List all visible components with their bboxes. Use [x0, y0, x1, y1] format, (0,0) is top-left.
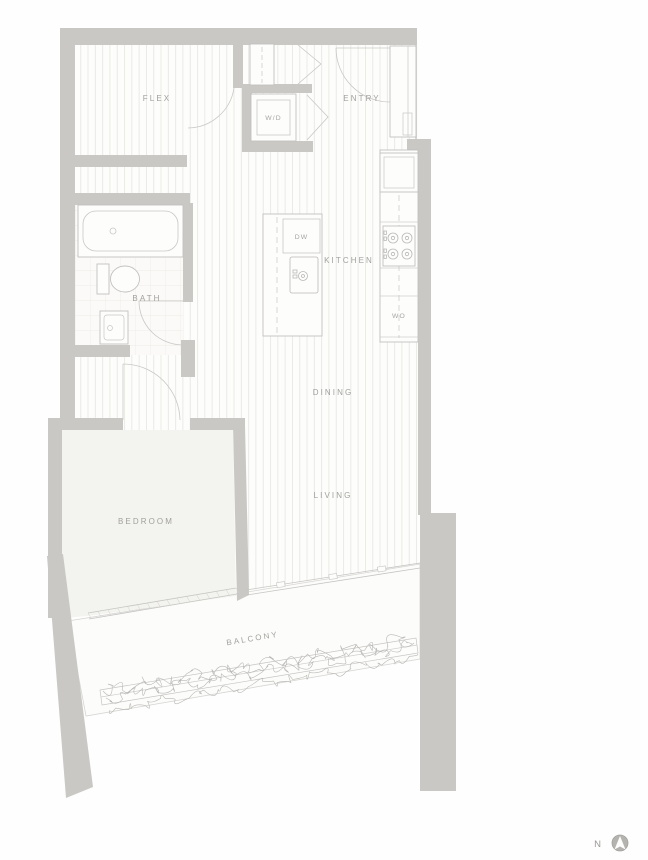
- range-stove: [383, 226, 415, 266]
- kitchen-island: [263, 214, 322, 336]
- toilet: [97, 264, 140, 294]
- wall-oven-label: WO: [392, 313, 406, 320]
- bedroom-label: BEDROOM: [118, 517, 174, 526]
- entry-side-closet: [390, 46, 416, 137]
- north-label: N: [594, 839, 602, 850]
- vanity-sink: [100, 311, 128, 344]
- right-pier: [420, 513, 456, 791]
- bathtub: [78, 205, 183, 257]
- refrigerator: [380, 153, 418, 192]
- floor-plan-page: VANS: [0, 0, 648, 860]
- island-sink: [290, 257, 318, 293]
- dishwasher-label: DW: [295, 234, 309, 241]
- dining-label: DINING: [313, 388, 354, 397]
- bath-label: BATH: [132, 294, 161, 303]
- living-label: LIVING: [314, 491, 353, 500]
- washer-dryer-label: W/D: [265, 115, 282, 122]
- floor-plan-svg: VANS: [0, 0, 648, 860]
- entry-label: ENTRY: [343, 94, 380, 103]
- flex-label: FLEX: [143, 94, 171, 103]
- kitchen-label: KITCHEN: [324, 256, 374, 265]
